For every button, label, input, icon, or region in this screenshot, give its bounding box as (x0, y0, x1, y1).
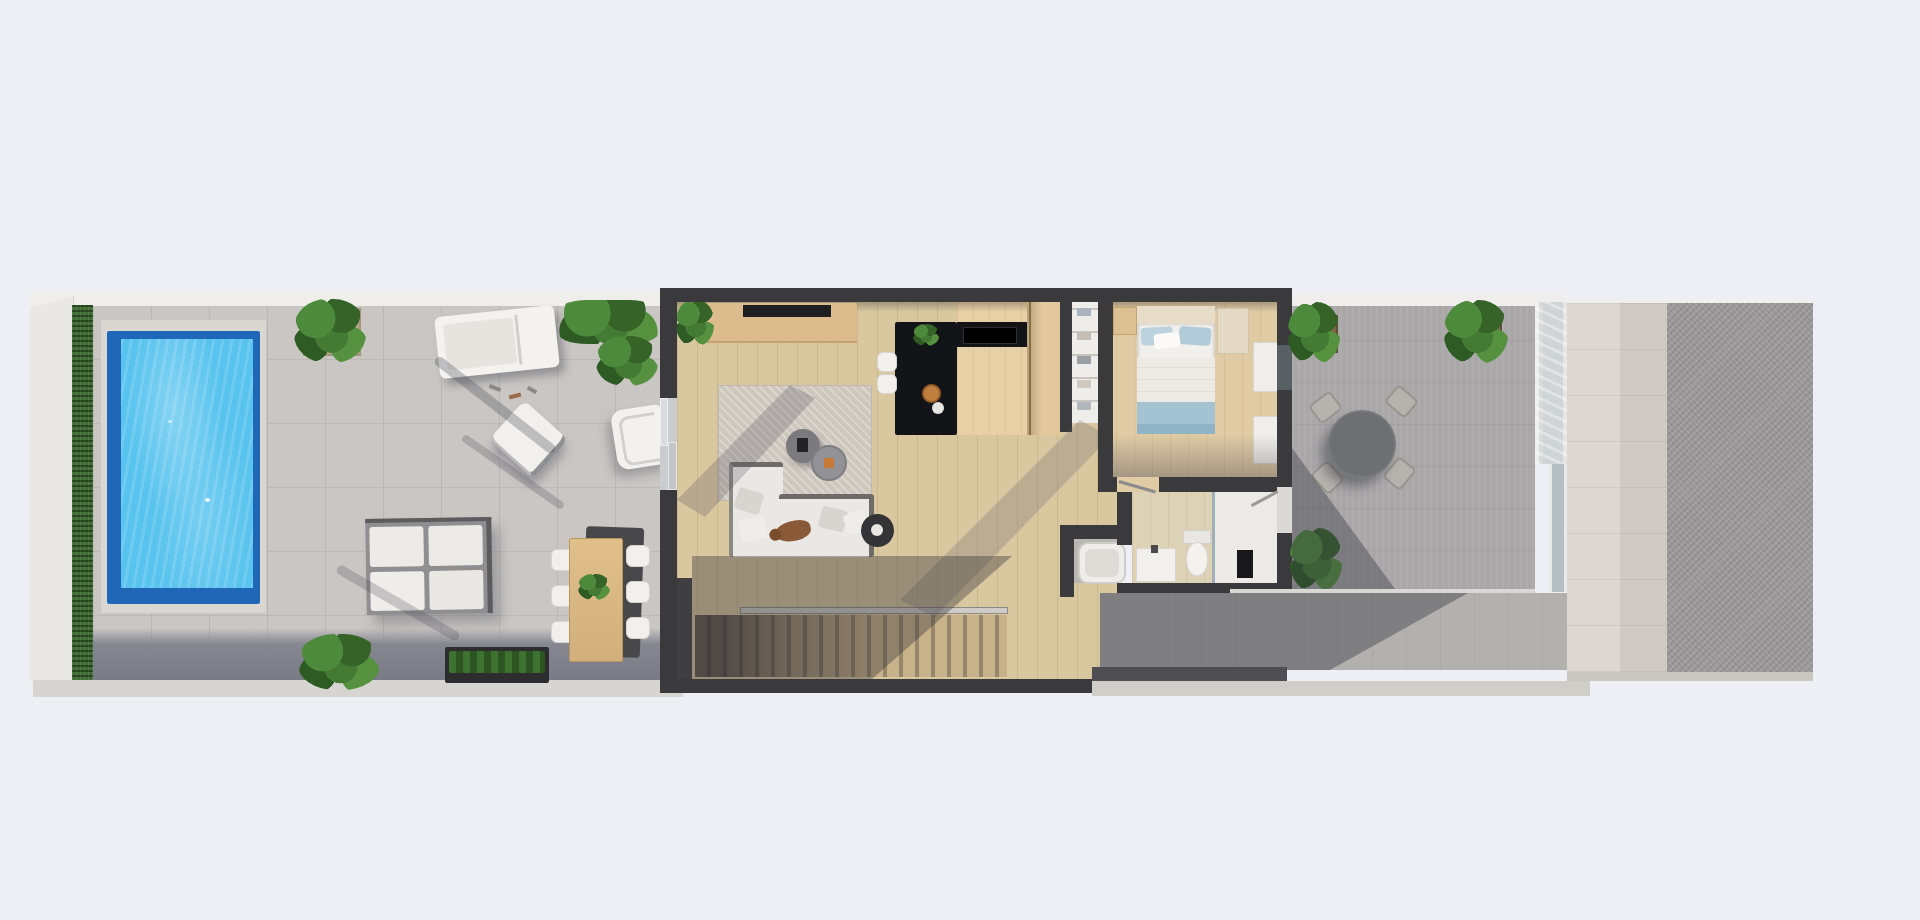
dining-chair (626, 581, 650, 603)
side-table-decor (871, 524, 883, 536)
patio-roof-edge (1292, 294, 1565, 306)
entry-door-opening (1277, 487, 1292, 533)
faucet (1151, 545, 1158, 553)
bed-pillow-blue (1178, 326, 1211, 346)
wood-serving-bowl (922, 384, 941, 403)
seat-cushion (428, 525, 483, 565)
folded-clothes (1077, 332, 1091, 340)
planter-box (445, 647, 549, 683)
wall-plant-spill (596, 336, 658, 386)
bar-stool (877, 352, 897, 372)
coffee-table-decor (797, 438, 808, 452)
wall-bedroom-left (1098, 302, 1113, 492)
patio-plant-top-right (1444, 300, 1508, 364)
tv (743, 305, 831, 317)
swimming-pool-water (121, 339, 253, 588)
wall-bottom (660, 679, 1100, 693)
dining-chair (626, 545, 650, 567)
wardrobe-closet (1072, 302, 1098, 423)
water-glint (205, 498, 210, 502)
shower-glass-screen (1212, 492, 1215, 583)
glass-door-panel (660, 398, 668, 446)
stair-depth-shadow (695, 615, 1007, 677)
left-boundary-wall (30, 296, 74, 682)
stair-railing (740, 607, 1008, 614)
kitchen-back-counter (957, 322, 1033, 347)
dining-table (569, 538, 623, 662)
bathtub-inner (1085, 549, 1119, 577)
privacy-hedge (72, 305, 93, 682)
table-centerpiece-plant (578, 574, 610, 600)
bed-headboard (1137, 306, 1215, 325)
seat-cushion (369, 526, 424, 566)
stair-treads (695, 615, 1007, 677)
armchair-seat-line (618, 412, 662, 467)
vanity-sink (1136, 548, 1176, 582)
dining-chair (626, 617, 650, 639)
cooktop (963, 327, 1017, 344)
island-plant (913, 324, 939, 346)
coffee-table-small (811, 445, 847, 481)
sliding-glass-door (660, 398, 677, 490)
bedside-table (1113, 307, 1137, 335)
surroundings-bottom-edge (1567, 672, 1813, 681)
stone-wall-strip (1567, 303, 1667, 672)
wall-niche-left (1060, 525, 1074, 597)
bed-pillow-white (1153, 332, 1180, 350)
toilet-bowl (1186, 542, 1208, 576)
bedroom-wall-cabinet (1253, 342, 1279, 392)
walkway-bottom-band (1092, 681, 1590, 696)
bed-throw-blue (1137, 402, 1215, 426)
bar-stool (877, 374, 897, 394)
white-plate (932, 402, 944, 414)
bedroom-lower-shadow (1113, 434, 1277, 477)
indoor-corner-plant (676, 300, 714, 346)
window-right-wall (1277, 345, 1292, 390)
wall-plant-row (556, 300, 660, 344)
folded-clothes (1077, 380, 1091, 388)
round-side-table (861, 514, 894, 547)
planter-box-plants (449, 651, 545, 673)
glass-balustrade-lower (1549, 464, 1567, 592)
wall-top (660, 288, 1292, 302)
corner-plant-bottom-left (298, 634, 380, 690)
water-glint (168, 420, 172, 423)
lounger-towel (443, 317, 517, 370)
glass-reflection (1535, 302, 1567, 464)
cabinet-handle-line (1029, 302, 1031, 435)
foot-bench (1217, 308, 1249, 354)
gravel-roof-block (1667, 303, 1813, 673)
glass-door-panel (668, 442, 677, 490)
tall-kitchen-cabinets (1027, 302, 1060, 435)
folded-clothes (1077, 308, 1091, 316)
folded-clothes (1077, 356, 1091, 364)
patio-plant-bottom-left (1290, 528, 1342, 592)
bed-throw-edge (1137, 424, 1215, 434)
floorplan-render: Top-down 3D architectural floor plan ren… (0, 0, 1920, 920)
patio-plant-top-left (1288, 302, 1340, 364)
seat-cushion (429, 570, 484, 610)
stairwell-wall (677, 578, 692, 679)
glass-balustrade-upper (1535, 302, 1567, 464)
rear-walkway (1100, 593, 1577, 670)
wall-left (660, 288, 677, 693)
round-patio-table (1328, 410, 1396, 478)
planter-plant (294, 299, 366, 363)
shower-fixture (1237, 550, 1253, 578)
candle-box (824, 458, 834, 468)
bathtub (1078, 542, 1126, 584)
folded-clothes (1077, 402, 1091, 410)
walkway-rail-line (1230, 589, 1535, 593)
kitchen-divider-wall (1060, 302, 1072, 432)
bed-duvet (1137, 358, 1215, 404)
